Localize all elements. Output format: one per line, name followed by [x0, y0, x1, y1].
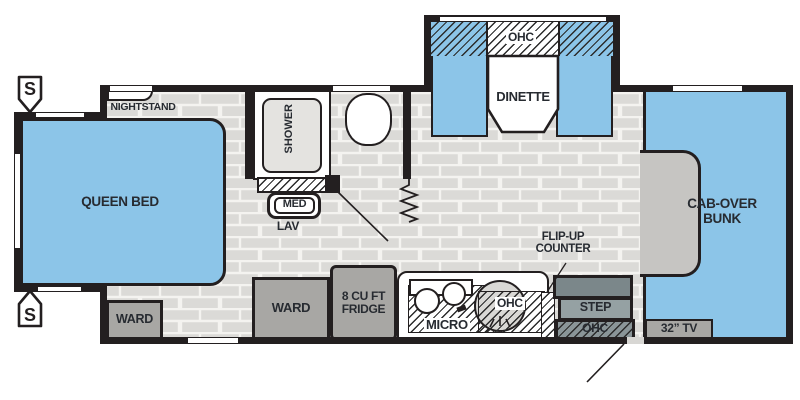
bath-wall-right: [403, 92, 411, 179]
window-rear-bottom: [38, 286, 81, 292]
slideout-wall-right: [613, 15, 620, 92]
kitchen-ohc-label: OHC: [495, 297, 525, 310]
bath-wall-left: [245, 92, 253, 179]
wall-connector-top: [100, 85, 107, 118]
fridge-label: 8 CU FTFRIDGE: [330, 290, 397, 316]
dinette-ohc-right: [558, 22, 613, 56]
dinette-bench-left: [431, 56, 488, 137]
window-rear-left: [14, 154, 21, 248]
dinette-bench-right: [556, 56, 613, 137]
speaker-badge-top: S: [16, 74, 44, 116]
wall-connector-bottom: [100, 286, 107, 344]
dinette-ohc-left: [431, 22, 488, 56]
entry-door-opening: [627, 337, 644, 344]
flip-up-counter-label: FLIP-UPCOUNTER: [518, 231, 608, 256]
dinette-ohc-label: OHC: [506, 31, 536, 44]
tv-label: 32” TV: [645, 322, 713, 335]
micro-label: MICRO: [424, 318, 470, 332]
rv-floorplan: CAB-OVERBUNK 32” TV NIGHTSTAND QUEEN BED…: [0, 0, 800, 400]
window-rear-top: [36, 112, 84, 118]
entry-cabinet: [553, 275, 633, 299]
slideout-wall-left: [424, 15, 431, 92]
window-top-bunk: [673, 85, 742, 92]
window-top-bedroom: [110, 85, 152, 92]
lav-label: LAV: [262, 220, 314, 233]
burner-right: [442, 282, 466, 306]
flip-up-counter: [541, 292, 555, 339]
step-label: STEP: [558, 301, 633, 315]
toilet: [345, 93, 392, 146]
speaker-badge-bottom: S: [16, 287, 44, 329]
svg-text:S: S: [24, 305, 36, 325]
bedroom-ward-label: WARD: [106, 313, 163, 327]
entry-ohc-label: OHC: [555, 322, 635, 335]
svg-text:S: S: [24, 79, 36, 99]
queen-bed-label: QUEEN BED: [50, 195, 190, 210]
window-slideout-top: [440, 17, 606, 21]
lav-overhead-cabinet: [257, 177, 327, 193]
kitchen-ward-label: WARD: [252, 301, 330, 315]
window-bottom-galley: [188, 337, 238, 344]
window-top-bath: [333, 85, 390, 92]
dinette-label: DINETTE: [487, 90, 559, 104]
med-label: MED: [274, 199, 315, 211]
nightstand-label: NIGHTSTAND: [105, 102, 181, 113]
wall-right: [786, 85, 793, 344]
bath-corner-post: [325, 175, 340, 193]
shower-label: SHOWER: [284, 104, 296, 154]
burner-left: [414, 288, 440, 314]
cab-over-bunk-label: CAB-OVERBUNK: [666, 197, 778, 226]
entry-door-swing-line: [587, 344, 624, 382]
